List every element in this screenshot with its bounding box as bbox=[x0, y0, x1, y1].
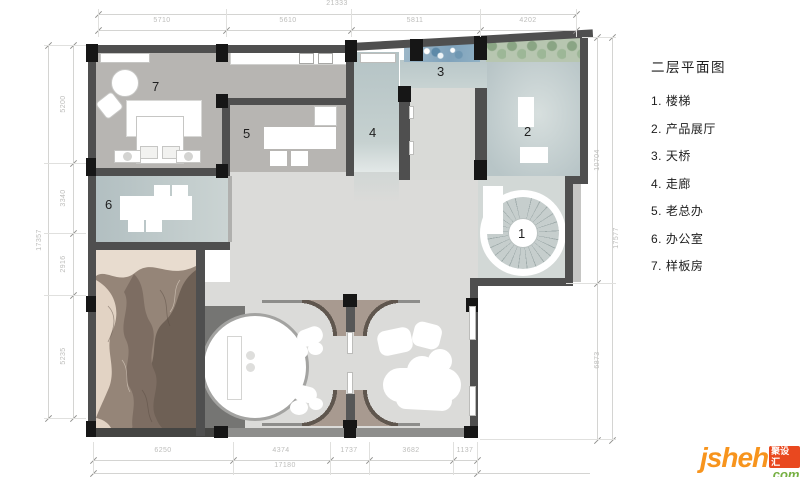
marker-model-room: 7 bbox=[152, 79, 159, 94]
pantry-sink-left bbox=[299, 53, 314, 64]
room6-chair-top2 bbox=[172, 185, 188, 197]
dim-extension-line bbox=[226, 9, 227, 37]
logo-side: 聚设汇 .com bbox=[769, 446, 800, 477]
room7-closet bbox=[100, 53, 150, 63]
legend-item-model-room: 7. 样板房 bbox=[651, 257, 726, 274]
arch-stool-1 bbox=[246, 351, 255, 360]
dim-label: 10704 bbox=[594, 133, 606, 187]
dim-extension-line bbox=[93, 442, 94, 475]
arch-bar-counter bbox=[227, 336, 242, 400]
waist-column-top bbox=[343, 294, 357, 307]
dim-line bbox=[98, 30, 576, 31]
legend-item-boss-office: 5. 老总办 bbox=[651, 202, 726, 219]
wall-stair-bottom bbox=[478, 278, 573, 286]
column bbox=[474, 36, 487, 60]
room7-round-table bbox=[111, 69, 139, 97]
flare-waist-bottom bbox=[346, 394, 355, 420]
marker-corridor: 4 bbox=[369, 125, 376, 140]
atrium-window-2 bbox=[409, 141, 414, 155]
atrium-window-1 bbox=[409, 106, 414, 119]
dim-label: 17180 bbox=[260, 462, 310, 469]
legend-item-bridge: 3. 天桥 bbox=[651, 147, 726, 164]
arch-stool-2 bbox=[246, 363, 255, 372]
legend-item-showroom: 2. 产品展厅 bbox=[651, 120, 726, 137]
dim-extension-line bbox=[582, 37, 616, 38]
column bbox=[86, 44, 98, 62]
showroom-display-horizontal bbox=[520, 147, 548, 163]
dim-extension-line bbox=[576, 9, 577, 37]
wall-room6-art bbox=[88, 242, 230, 250]
column bbox=[214, 426, 228, 438]
room7-lamp-right bbox=[184, 152, 193, 161]
dim-label: 2916 bbox=[60, 237, 72, 291]
terrain-art bbox=[96, 250, 196, 436]
logo-tld: .com bbox=[769, 468, 799, 477]
marker-bridge: 3 bbox=[437, 64, 444, 79]
floorplan-sheet: 1 2 3 4 5 6 7 21333 5710 5610 5811 4202 … bbox=[0, 0, 800, 477]
dim-label: 6873 bbox=[594, 333, 606, 387]
wall-room6-glass bbox=[228, 176, 232, 242]
lounge-curved-sofa-2 bbox=[396, 389, 453, 412]
dim-extension-line bbox=[351, 9, 352, 37]
dim-extension-line bbox=[98, 9, 99, 37]
dim-line bbox=[93, 460, 477, 461]
dim-label: 3682 bbox=[386, 447, 436, 454]
dim-label: 1737 bbox=[324, 447, 374, 454]
dim-label: 1137 bbox=[440, 447, 490, 454]
atrium-void-floor bbox=[410, 88, 475, 180]
column bbox=[398, 86, 411, 102]
dim-label: 3340 bbox=[60, 171, 72, 225]
dim-extension-line bbox=[233, 442, 234, 475]
wall-room5-left bbox=[222, 98, 230, 172]
dim-label: 5811 bbox=[390, 17, 440, 24]
room6-chair-top1 bbox=[154, 185, 170, 197]
lowerright-window-2 bbox=[469, 386, 476, 416]
column bbox=[86, 158, 96, 176]
lowerright-window-1 bbox=[469, 306, 476, 340]
room6-chair-bottom1 bbox=[128, 220, 144, 232]
wall-left bbox=[88, 45, 96, 437]
dim-extension-line bbox=[369, 442, 370, 475]
lounge-seat-2 bbox=[291, 344, 308, 359]
dim-extension-line bbox=[480, 9, 481, 37]
dim-extension-line bbox=[44, 233, 86, 234]
dim-extension-line bbox=[453, 442, 454, 475]
dim-extension-line bbox=[566, 283, 616, 284]
room5-chair-left bbox=[270, 151, 287, 166]
column bbox=[216, 164, 228, 178]
dim-extension-line bbox=[44, 45, 86, 46]
column bbox=[474, 160, 487, 180]
column bbox=[345, 40, 357, 62]
lounge-seat-3 bbox=[308, 342, 323, 355]
waist-glass-bottom bbox=[347, 372, 353, 394]
wall-room7-room6 bbox=[88, 168, 230, 176]
column bbox=[86, 296, 96, 312]
marker-stairs: 1 bbox=[518, 226, 525, 241]
marker-office: 6 bbox=[105, 197, 112, 212]
pantry-sink-right bbox=[318, 53, 333, 64]
dim-label: 5235 bbox=[60, 329, 72, 383]
stair-outer-band bbox=[573, 178, 581, 282]
dim-label: 21333 bbox=[312, 0, 362, 7]
flare-rail-bottom-left bbox=[262, 423, 302, 426]
flare-rail-bottom-right bbox=[398, 423, 420, 426]
dim-line bbox=[98, 14, 576, 15]
flare-rail-top-right bbox=[398, 300, 420, 303]
room5-desk bbox=[264, 127, 336, 149]
lounge-seat-6 bbox=[309, 398, 323, 410]
dim-extension-line bbox=[44, 295, 86, 296]
logo-brand-text: jsheh bbox=[700, 444, 768, 471]
dim-line bbox=[48, 45, 49, 418]
logo-badge: 聚设汇 bbox=[769, 446, 800, 468]
room5-chair-right bbox=[291, 151, 308, 166]
legend-title: 二层平面图 bbox=[651, 56, 726, 76]
column bbox=[216, 94, 228, 108]
dim-label: 5710 bbox=[137, 17, 187, 24]
wall-art-right bbox=[196, 250, 205, 436]
room5-cabinet bbox=[314, 106, 337, 126]
column bbox=[344, 426, 356, 438]
waist-glass-top bbox=[347, 332, 353, 354]
column bbox=[86, 421, 96, 437]
legend-item-office: 6. 办公室 bbox=[651, 230, 726, 247]
column bbox=[216, 44, 228, 62]
dim-label: 4374 bbox=[256, 447, 306, 454]
jsheh-logo: jsheh 聚设汇 .com bbox=[700, 444, 800, 477]
wall-room5-right bbox=[346, 52, 354, 176]
dim-extension-line bbox=[44, 163, 86, 164]
corridor-top-window bbox=[360, 53, 396, 63]
wall-room5-top bbox=[222, 98, 352, 105]
dim-extension-line bbox=[477, 442, 478, 475]
dim-label: 5610 bbox=[263, 17, 313, 24]
dim-label: 17577 bbox=[613, 211, 625, 265]
flare-rail-top-left bbox=[262, 300, 302, 303]
dim-label: 5200 bbox=[60, 77, 72, 131]
room7-pillow-left bbox=[140, 146, 158, 159]
dim-label: 17357 bbox=[36, 213, 48, 267]
legend-item-stairs: 1. 楼梯 bbox=[651, 92, 726, 109]
flare-waist-top bbox=[346, 306, 355, 332]
room6-chair-bottom2 bbox=[146, 220, 162, 232]
dim-label: 4202 bbox=[503, 17, 553, 24]
showroom-display-vertical bbox=[518, 97, 534, 127]
dim-label: 6250 bbox=[138, 447, 188, 454]
marker-boss-office: 5 bbox=[243, 126, 250, 141]
legend: 二层平面图 1. 楼梯 2. 产品展厅 3. 天桥 4. 走廊 5. 老总办 6… bbox=[651, 56, 726, 285]
room7-lamp-left bbox=[123, 152, 132, 161]
lounge-seat-5 bbox=[290, 400, 308, 415]
marker-showroom: 2 bbox=[524, 124, 531, 139]
wall-stair-right bbox=[565, 176, 573, 286]
dim-extension-line bbox=[44, 418, 86, 419]
wall-right bbox=[580, 32, 588, 184]
column bbox=[464, 426, 478, 438]
dim-line bbox=[93, 473, 590, 474]
corridor-floor bbox=[354, 52, 399, 202]
dim-extension-line bbox=[330, 442, 331, 475]
stair-entry-channel-top bbox=[485, 190, 503, 234]
dim-extension-line bbox=[480, 439, 616, 440]
column bbox=[410, 39, 423, 61]
legend-item-corridor: 4. 走廊 bbox=[651, 175, 726, 192]
room6-table bbox=[120, 196, 192, 220]
